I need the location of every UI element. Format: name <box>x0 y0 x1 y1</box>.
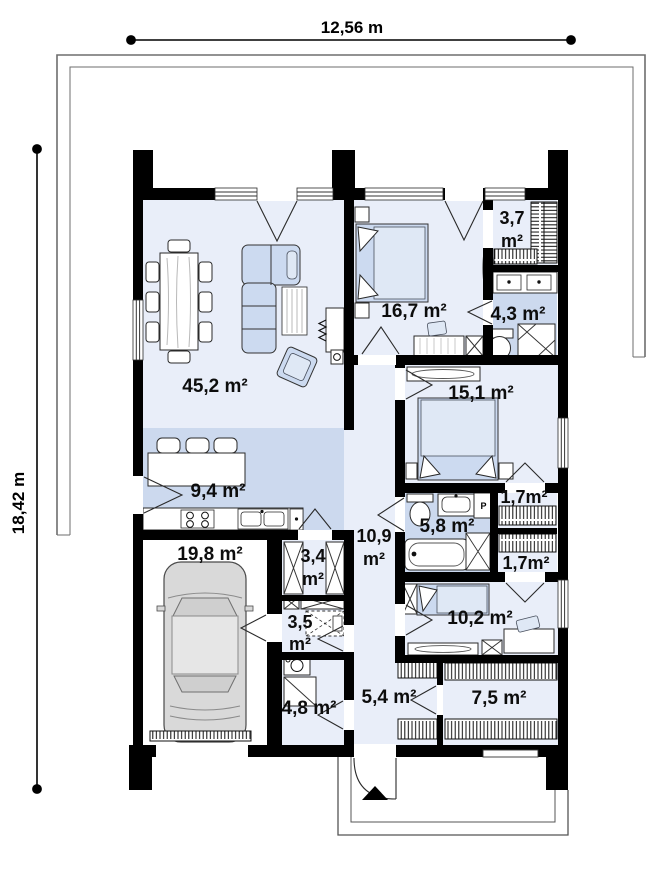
bench-icon <box>407 367 480 381</box>
label-bath-ensuite: 4,3 m² <box>491 304 546 325</box>
window-icon <box>558 580 568 628</box>
label-boiler: 4,8 m² <box>282 698 337 719</box>
label-living: 45,2 m² <box>182 376 247 397</box>
label-bedroom-master: 16,7 m² <box>381 301 446 322</box>
shower-main-icon <box>466 533 490 570</box>
label-wardrobe-hall: 7,5 m² <box>472 688 527 709</box>
window-icon <box>133 300 143 360</box>
sink-main-icon <box>438 494 474 516</box>
label-pantry-value: 3,4 <box>300 546 325 566</box>
double-sink-icon <box>493 272 557 293</box>
floor-plan-drawing: 12,56 m 18,42 m <box>0 0 660 878</box>
floor-plan-page: 12,56 m 18,42 m <box>0 0 660 878</box>
label-wardrobe-b: 1,7m² <box>502 553 549 573</box>
rug-icon <box>282 287 307 335</box>
window-icon <box>215 188 257 200</box>
label-wardrobe-master-unit: m² <box>501 231 523 251</box>
dimension-height-label: 18,42 m <box>9 472 28 534</box>
label-utility-unit: m² <box>289 634 311 654</box>
label-pantry-unit: m² <box>302 569 324 589</box>
label-wardrobe-a: 1,7m² <box>500 487 547 507</box>
label-bedroom-3: 10,2 m² <box>447 608 512 629</box>
window-icon <box>365 188 443 200</box>
dimension-width-label: 12,56 m <box>321 18 383 37</box>
bathtub-icon <box>405 539 468 570</box>
label-hallway-value: 10,9 <box>356 526 391 546</box>
window-icon <box>558 418 568 468</box>
label-hallway-unit: m² <box>363 549 385 569</box>
garage-door-icon <box>150 731 251 741</box>
label-corridor: 5,4 m² <box>362 687 417 708</box>
label-bedroom-2: 15,1 m² <box>448 383 513 404</box>
washer-label: P <box>480 501 486 511</box>
label-garage: 19,8 m² <box>177 544 242 565</box>
label-bath-main: 5,8 m² <box>420 516 475 537</box>
bed-2-icon <box>406 398 513 480</box>
shower-ensuite-icon <box>518 324 555 357</box>
kitchen-counter-icon <box>143 508 303 530</box>
label-kitchen: 9,4 m² <box>191 481 246 502</box>
label-wardrobe-master-value: 3,7 <box>499 208 524 228</box>
window-icon <box>297 188 333 200</box>
window-icon <box>485 188 525 200</box>
car-icon <box>157 562 253 742</box>
kitchen-island-icon <box>148 438 245 486</box>
label-utility-value: 3,5 <box>287 612 312 632</box>
entrance-arrow-icon <box>362 786 388 800</box>
